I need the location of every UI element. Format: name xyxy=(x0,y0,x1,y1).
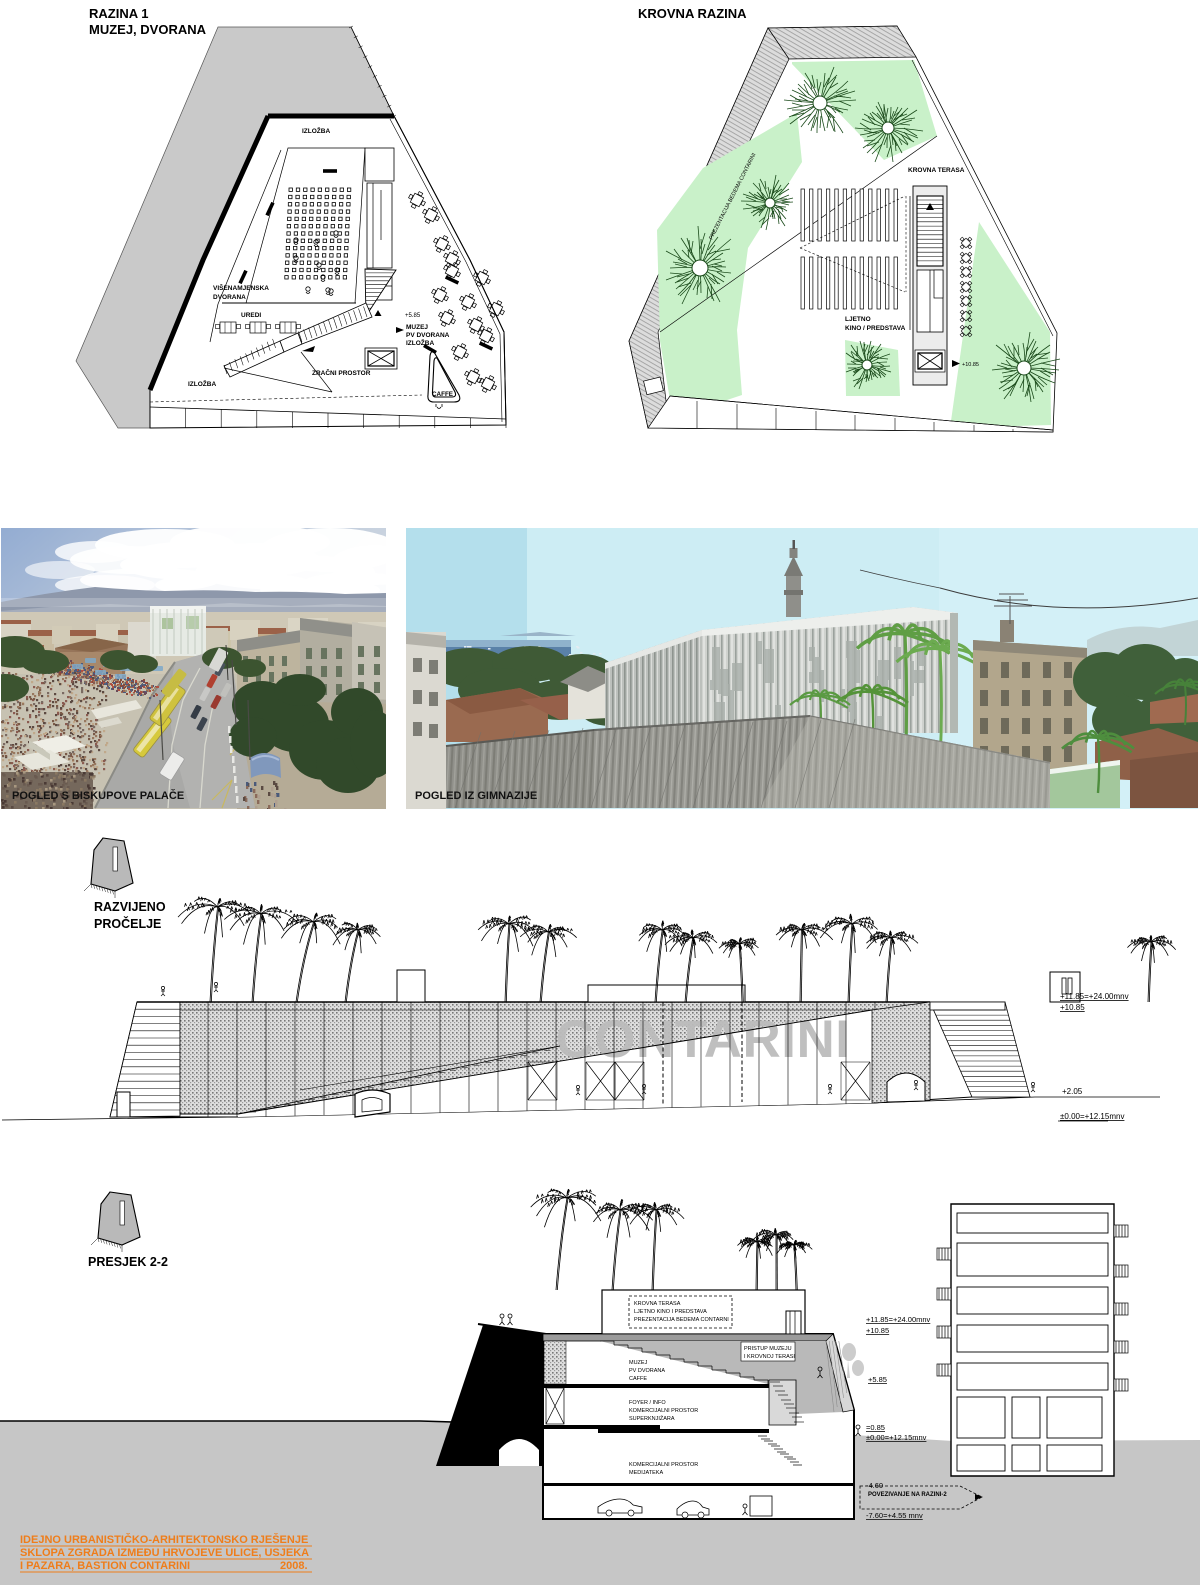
svg-text:VIŠENAMJENSKA: VIŠENAMJENSKA xyxy=(213,283,269,292)
svg-text:PV DVORANA: PV DVORANA xyxy=(629,1368,665,1374)
svg-text:-7.60=+4.55 mnv: -7.60=+4.55 mnv xyxy=(866,1511,923,1520)
svg-text:RAZINA 1: RAZINA 1 xyxy=(89,6,148,21)
svg-text:-4.60: -4.60 xyxy=(866,1481,883,1490)
svg-text:POGLED IZ GIMNAZIJE: POGLED IZ GIMNAZIJE xyxy=(415,790,537,802)
svg-text:MUZEJ: MUZEJ xyxy=(406,324,428,331)
svg-text:POGLED S BISKUPOVE PALAČE: POGLED S BISKUPOVE PALAČE xyxy=(12,789,184,802)
svg-text:KROVNA TERASA: KROVNA TERASA xyxy=(908,167,965,174)
svg-text:+2.05: +2.05 xyxy=(1062,1087,1083,1096)
svg-text:CAFFE: CAFFE xyxy=(432,391,453,398)
svg-text:POVEZIVANJE NA RAZINI-2: POVEZIVANJE NA RAZINI-2 xyxy=(868,1492,947,1498)
svg-text:ZRAČNI PROSTOR: ZRAČNI PROSTOR xyxy=(312,368,371,377)
svg-text:MUZEJ, DVORANA: MUZEJ, DVORANA xyxy=(89,22,207,37)
svg-text:LJETNO: LJETNO xyxy=(845,316,871,323)
svg-text:CAFFE: CAFFE xyxy=(629,1376,647,1382)
svg-text:PRISTUP MUZEJU: PRISTUP MUZEJU xyxy=(744,1346,792,1352)
svg-text:+10.85: +10.85 xyxy=(866,1326,889,1335)
svg-text:+11.85=+24.00mnv: +11.85=+24.00mnv xyxy=(1060,992,1129,1001)
svg-text:SKLOPA ZGRADA IZMEĐU HRVOJEVE: SKLOPA ZGRADA IZMEĐU HRVOJEVE ULICE, USJ… xyxy=(20,1547,309,1559)
svg-text:KOMERCIJALNI PROSTOR: KOMERCIJALNI PROSTOR xyxy=(629,1408,698,1414)
svg-text:RAZVIJENO: RAZVIJENO xyxy=(94,900,166,914)
svg-text:+5.85: +5.85 xyxy=(868,1375,887,1384)
svg-text:IZLOŽBA: IZLOŽBA xyxy=(302,126,330,135)
svg-text:I PAZARA, BASTION CONTARINI: I PAZARA, BASTION CONTARINI xyxy=(20,1560,190,1572)
svg-text:±0.00=+12.15mnv: ±0.00=+12.15mnv xyxy=(1060,1112,1124,1121)
svg-text:MUZEJ: MUZEJ xyxy=(629,1360,648,1366)
svg-text:+11.85=+24.00mnv: +11.85=+24.00mnv xyxy=(866,1315,931,1324)
svg-text:UREDI: UREDI xyxy=(241,312,261,319)
svg-text:FOYER / INFO: FOYER / INFO xyxy=(629,1400,666,1406)
svg-text:KROVNA TERASA: KROVNA TERASA xyxy=(634,1301,681,1307)
svg-text:+10.85: +10.85 xyxy=(962,362,979,368)
svg-text:SUPERKNJIŽARA: SUPERKNJIŽARA xyxy=(629,1414,675,1422)
svg-text:PRESJEK 2-2: PRESJEK 2-2 xyxy=(88,1255,168,1269)
svg-text:2008.: 2008. xyxy=(280,1560,308,1572)
svg-text:+5.85: +5.85 xyxy=(405,313,421,319)
svg-text:=0.85: =0.85 xyxy=(866,1423,885,1432)
svg-text:KOMERCIJALNI PROSTOR: KOMERCIJALNI PROSTOR xyxy=(629,1462,698,1468)
svg-text:MEDIJATEKA: MEDIJATEKA xyxy=(629,1470,663,1476)
svg-text:KINO / PREDSTAVA: KINO / PREDSTAVA xyxy=(845,325,906,332)
svg-text:PROČELJE: PROČELJE xyxy=(94,916,161,931)
svg-text:KROVNA RAZINA: KROVNA RAZINA xyxy=(638,6,747,21)
svg-text:DVORANA: DVORANA xyxy=(213,294,246,301)
svg-text:+10.85: +10.85 xyxy=(1060,1003,1085,1012)
svg-text:IZLOŽBA: IZLOŽBA xyxy=(406,338,434,347)
svg-text:LJETNO KINO I PREDSTAVA: LJETNO KINO I PREDSTAVA xyxy=(634,1309,707,1315)
svg-text:IZLOŽBA: IZLOŽBA xyxy=(188,379,216,388)
svg-text:IDEJNO URBANISTIČKO-ARHITEKTON: IDEJNO URBANISTIČKO-ARHITEKTONSKO RJEŠEN… xyxy=(20,1533,308,1546)
svg-text:±0.00=+12.15mnv: ±0.00=+12.15mnv xyxy=(866,1433,927,1442)
svg-text:PV DVORANA: PV DVORANA xyxy=(406,332,450,339)
svg-text:PREZENTACIJA BEDEMA CONTARNI: PREZENTACIJA BEDEMA CONTARNI xyxy=(634,1317,729,1323)
svg-text:I KROVNOJ TERASI: I KROVNOJ TERASI xyxy=(744,1354,795,1360)
svg-text:CONTARINI: CONTARINI xyxy=(556,1010,851,1069)
